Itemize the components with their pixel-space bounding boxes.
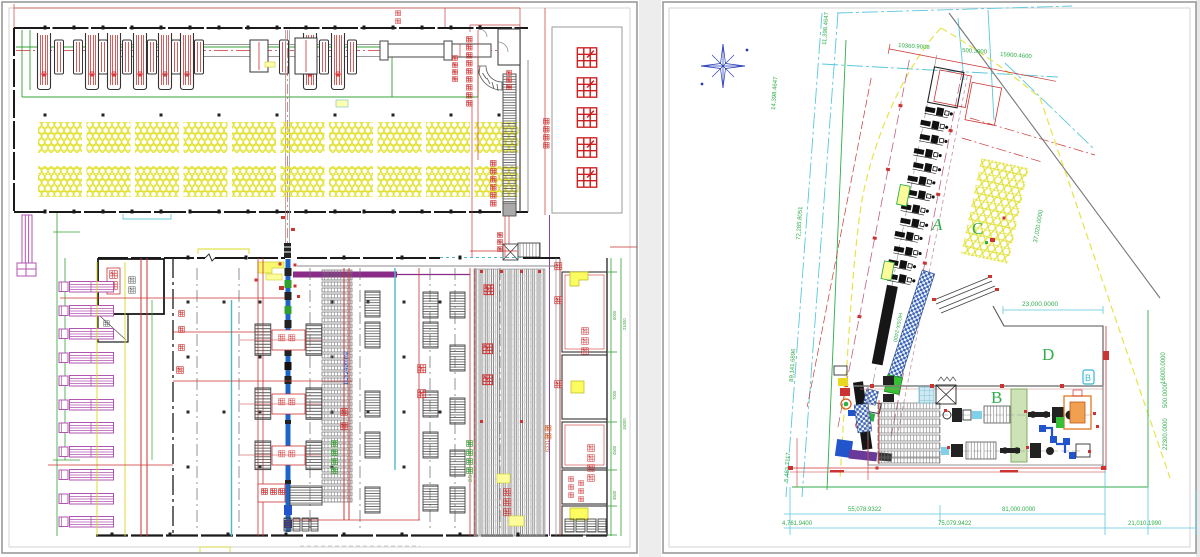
svg-text:21000: 21000 xyxy=(622,318,627,330)
svg-text:3500: 3500 xyxy=(612,490,617,500)
svg-text:6331: 6331 xyxy=(545,440,551,452)
svg-text:1Cx240mm2: 1Cx240mm2 xyxy=(344,350,350,385)
svg-text:23,000.0000: 23,000.0000 xyxy=(1022,301,1059,308)
svg-text:4,761.9400: 4,761.9400 xyxy=(782,521,813,527)
svg-text:22300.0000: 22300.0000 xyxy=(1163,418,1169,450)
svg-text:55,078.9322: 55,078.9322 xyxy=(848,507,882,513)
svg-text:3.5: 3.5 xyxy=(468,475,474,482)
svg-text:A: A xyxy=(931,215,943,234)
svg-text:500.0000: 500.0000 xyxy=(1163,382,1169,408)
svg-text:4500: 4500 xyxy=(612,445,617,455)
svg-text:16000.0000: 16000.0000 xyxy=(1161,352,1167,384)
svg-text:C: C xyxy=(972,219,983,238)
svg-text:B: B xyxy=(1085,373,1091,383)
svg-text:B: B xyxy=(991,388,1002,407)
svg-text:75,079.9422: 75,079.9422 xyxy=(938,521,972,527)
svg-text:D: D xyxy=(1042,345,1054,364)
svg-text:7000: 7000 xyxy=(612,390,617,400)
svg-text:6000: 6000 xyxy=(612,310,617,320)
svg-text:21,010.1990: 21,010.1990 xyxy=(1128,521,1162,527)
svg-text:15000: 15000 xyxy=(622,418,627,430)
svg-text:81,000.0000: 81,000.0000 xyxy=(1002,507,1036,513)
